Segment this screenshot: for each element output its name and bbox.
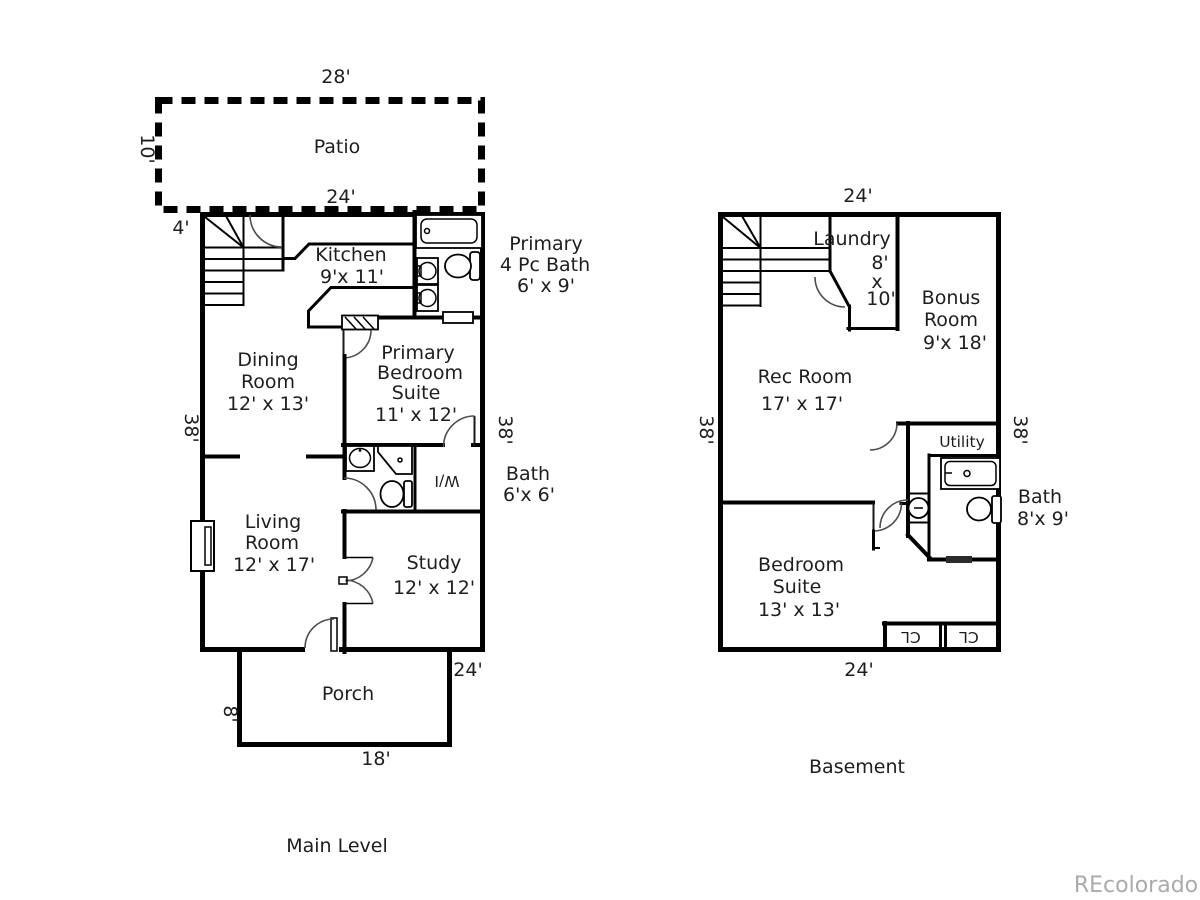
- patio-dim-offset: 4': [172, 217, 189, 239]
- main-dim-right: 38': [494, 415, 516, 444]
- bonus-line2: Room: [924, 309, 978, 331]
- living-line2: Room: [245, 532, 299, 554]
- kitchen-size: 9'x 11': [320, 266, 384, 288]
- closet-left-label: CL: [901, 628, 921, 646]
- toilet-bowl: [381, 481, 404, 507]
- dining-size: 12' x 13': [227, 393, 309, 415]
- bath-size: 6'x 6': [503, 484, 555, 506]
- hall-bath-fixtures: [346, 446, 412, 507]
- dining-line1: Dining: [237, 349, 298, 371]
- closet-right-label: CL: [959, 628, 979, 646]
- french-door-arc-bottom: [346, 580, 374, 604]
- hall-bath-door-arc: [344, 478, 376, 510]
- basement-dim-left: 38': [695, 415, 717, 444]
- primary-bedroom-size: 11' x 12': [375, 404, 457, 426]
- study-size: 12' x 12': [393, 577, 475, 599]
- bath-threshold: [946, 556, 972, 563]
- bath-name: Bath: [506, 463, 550, 485]
- utility-name: Utility: [939, 433, 985, 451]
- living-line1: Living: [245, 511, 302, 533]
- basement-dim-top: 24': [843, 185, 872, 207]
- rec-room-size: 17' x 17': [761, 393, 843, 415]
- basement-closets: [884, 623, 999, 650]
- primary-bedroom-line1: Primary: [381, 342, 454, 364]
- porch-door-arc: [305, 619, 334, 648]
- bedroom-door-arc: [344, 330, 372, 358]
- basement-bedroom-size: 13' x 13': [758, 599, 840, 621]
- basement-bath-fixtures: [909, 458, 1002, 523]
- primary-bedroom-line2: Bedroom: [377, 362, 463, 384]
- main-level-title: Main Level: [286, 835, 388, 857]
- living-size: 12' x 17': [233, 554, 315, 576]
- main-dim-left: 38': [180, 413, 202, 442]
- primary-bath-fixtures: [416, 215, 482, 311]
- basement-bath-name: Bath: [1018, 486, 1062, 508]
- primary-bath-line2: 4 Pc Bath: [500, 254, 590, 276]
- walk-in-label: W/I: [434, 472, 459, 490]
- rec-room-name: Rec Room: [758, 366, 853, 388]
- bonus-line1: Bonus: [922, 287, 981, 309]
- basement-bedroom-line2: Suite: [773, 576, 822, 598]
- patio-dim-top: 28': [321, 66, 350, 88]
- bath-opening-threshold: [443, 312, 473, 323]
- porch-dim-right: 24': [453, 659, 482, 681]
- corner-shower: [378, 446, 412, 474]
- fireplace: [191, 521, 214, 571]
- laundry-dim-l: 10': [866, 288, 895, 310]
- patio-dim-bottom: 24': [326, 186, 355, 208]
- basement-toilet-tank: [992, 496, 1001, 523]
- primary-bedroom-line3: Suite: [392, 382, 441, 404]
- laundry-name: Laundry: [813, 228, 890, 250]
- basement-bedroom-line1: Bedroom: [758, 554, 844, 576]
- floor-plan-page: 28' Patio 24' 10' 4' Kitchen 9'x 11' Pri…: [0, 0, 1200, 900]
- kitchen-name: Kitchen: [315, 244, 386, 266]
- main-level-plan: 28' Patio 24' 10' 4' Kitchen 9'x 11' Pri…: [136, 66, 590, 857]
- bath-sink-faucet: [359, 449, 362, 452]
- patio-label: Patio: [314, 136, 361, 158]
- study-name: Study: [407, 552, 462, 574]
- stair-door-arc: [250, 215, 282, 247]
- basement-dim-bottom: 24': [844, 659, 873, 681]
- floor-plan-drawing: 28' Patio 24' 10' 4' Kitchen 9'x 11' Pri…: [0, 0, 1200, 900]
- bonus-size: 9'x 18': [923, 332, 987, 354]
- utility-door-arc: [870, 423, 897, 450]
- basement-toilet-bowl: [967, 498, 991, 521]
- basement-plan: 24' Laundry 8' x 10' Bonus Room 9'x 18' …: [695, 185, 1069, 778]
- patio-dim-left: 10': [136, 134, 158, 163]
- watermark: REcolorado: [1074, 873, 1198, 898]
- pantry-hatch: [342, 316, 378, 330]
- basement-bath-size: 8'x 9': [1017, 508, 1069, 530]
- toilet-tank: [404, 481, 412, 507]
- porch-dim-bottom: 18': [361, 748, 390, 770]
- french-door-arc-top: [346, 558, 374, 582]
- basement-dim-right: 38': [1009, 415, 1031, 444]
- porch-door-gap: [305, 646, 339, 658]
- basement-title: Basement: [809, 756, 905, 778]
- primary-bath-size: 6' x 9': [517, 275, 575, 297]
- basement-bedroom-door-arc: [874, 503, 902, 531]
- basement-outline: [721, 215, 999, 650]
- primary-bath-line1: Primary: [509, 233, 582, 255]
- study-walls: [339, 511, 373, 652]
- dining-line2: Room: [241, 371, 295, 393]
- porch-label: Porch: [322, 683, 374, 705]
- stairs-main: [203, 214, 283, 306]
- primary-toilet-bowl: [445, 255, 471, 278]
- porch-dim-left: 8': [219, 705, 241, 722]
